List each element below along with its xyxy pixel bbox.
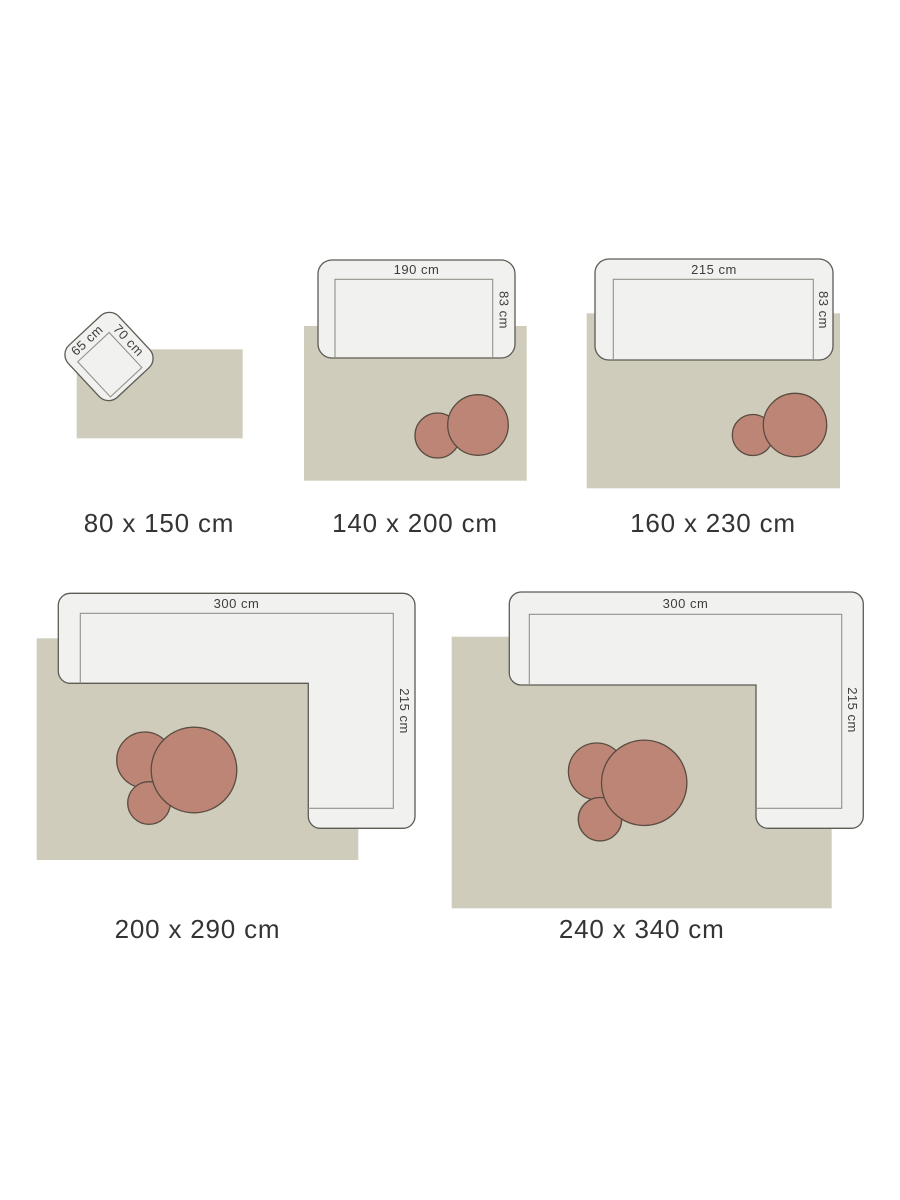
size-label-140x200: 140 x 200 cm [332, 508, 498, 538]
side-table-large [448, 395, 509, 456]
diagram-240x340: 300 cm 215 cm [452, 592, 864, 908]
diagram-160x230: 215 cm 83 cm [587, 259, 840, 488]
rug-size-guide-page: 65 cm 70 cm 190 cm 83 cm 215 cm 83 c [0, 0, 900, 1200]
corner-sofa-width-label: 300 cm [663, 596, 709, 611]
corner-sofa-depth-label: 215 cm [845, 687, 860, 733]
sofa-top-view: 215 cm 83 cm [595, 259, 833, 360]
sofa-width-label: 215 cm [691, 262, 737, 277]
coffee-table-large [602, 740, 687, 825]
size-label-160x230: 160 x 230 cm [630, 508, 796, 538]
size-label-240x340: 240 x 340 cm [559, 914, 725, 944]
sofa-depth-label: 83 cm [816, 291, 831, 329]
side-table-large [763, 393, 826, 456]
diagram-200x290: 300 cm 215 cm [37, 593, 415, 860]
corner-sofa-width-label: 300 cm [214, 596, 260, 611]
corner-sofa-depth-label: 215 cm [397, 688, 412, 734]
rug-size-guide-canvas: 65 cm 70 cm 190 cm 83 cm 215 cm 83 c [0, 0, 900, 1200]
diagram-140x200: 190 cm 83 cm [304, 260, 527, 481]
sofa-top-view: 190 cm 83 cm [318, 260, 515, 358]
diagram-80x150: 65 cm 70 cm [60, 307, 243, 438]
sofa-depth-label: 83 cm [496, 291, 511, 329]
size-label-80x150: 80 x 150 cm [84, 508, 234, 538]
size-label-200x290: 200 x 290 cm [115, 914, 281, 944]
coffee-table-large [151, 727, 237, 813]
sofa-width-label: 190 cm [394, 262, 440, 277]
